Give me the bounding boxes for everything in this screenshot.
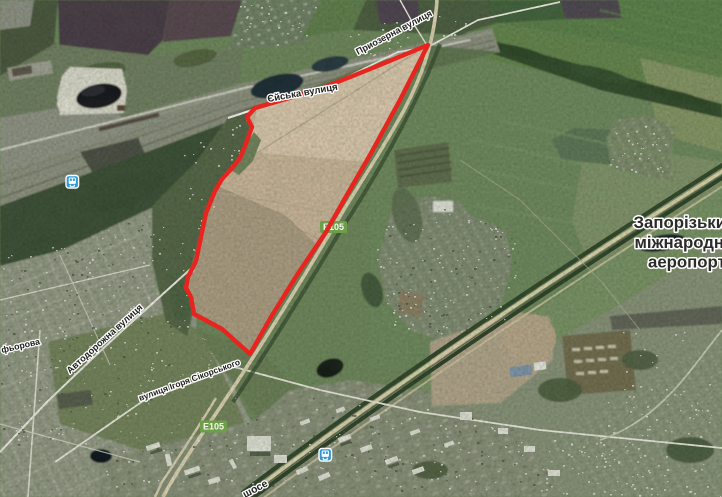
svg-text:Е105: Е105 (203, 422, 224, 432)
